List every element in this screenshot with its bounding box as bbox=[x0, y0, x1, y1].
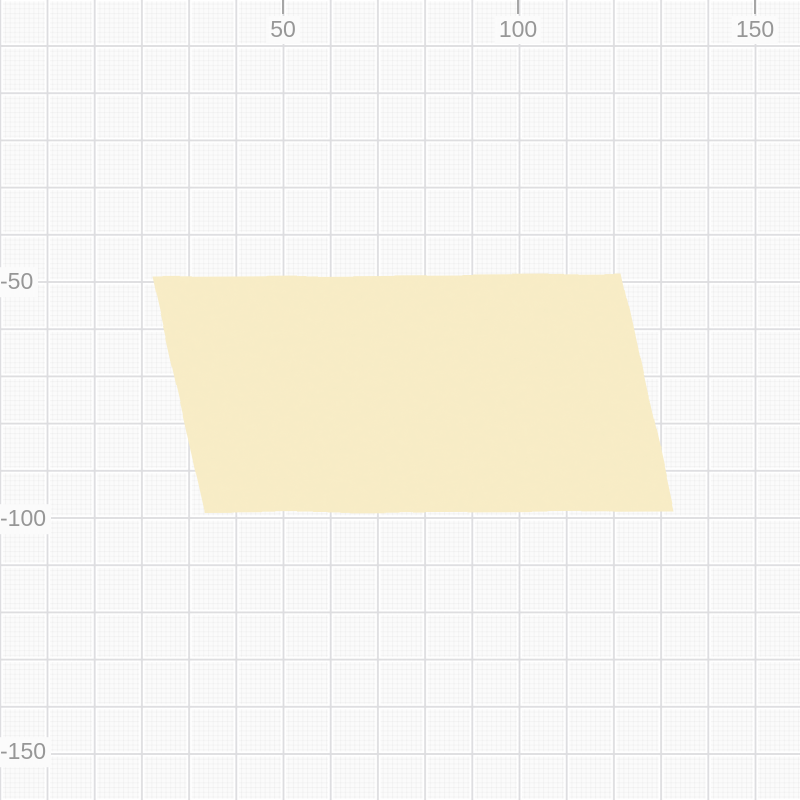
canvas-stage[interactable]: 50 100 150 -50 -100 -150 bbox=[0, 0, 800, 800]
grid-canvas[interactable] bbox=[0, 0, 800, 800]
parallelogram-shape-texture bbox=[152, 274, 674, 513]
